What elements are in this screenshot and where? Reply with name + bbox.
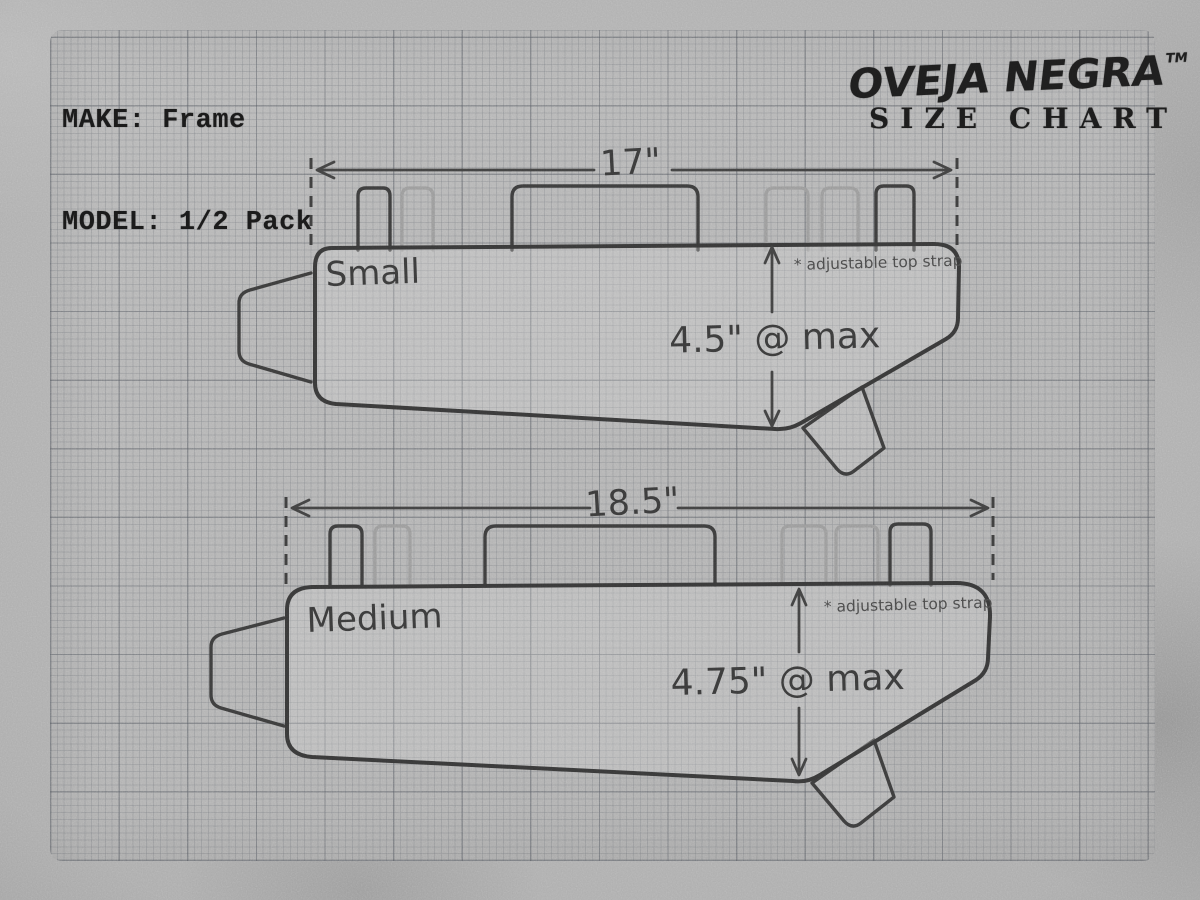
model-line: MODEL: 1/2 Pack — [62, 206, 313, 240]
trademark-mark: TM — [1165, 51, 1189, 67]
size-chart-sheet: MAKE: Frame MODEL: 1/2 Pack OVEJA NEGRAT… — [0, 0, 1200, 900]
size-chart-title: SIZE CHART — [858, 102, 1178, 135]
brand-block: OVEJA NEGRATM SIZE CHART — [862, 44, 1174, 135]
brand-name: OVEJA NEGRA — [846, 47, 1167, 109]
spec-header: MAKE: Frame MODEL: 1/2 Pack — [62, 36, 313, 308]
brand-logo: OVEJA NEGRATM — [846, 37, 1190, 107]
make-line: MAKE: Frame — [62, 104, 313, 138]
